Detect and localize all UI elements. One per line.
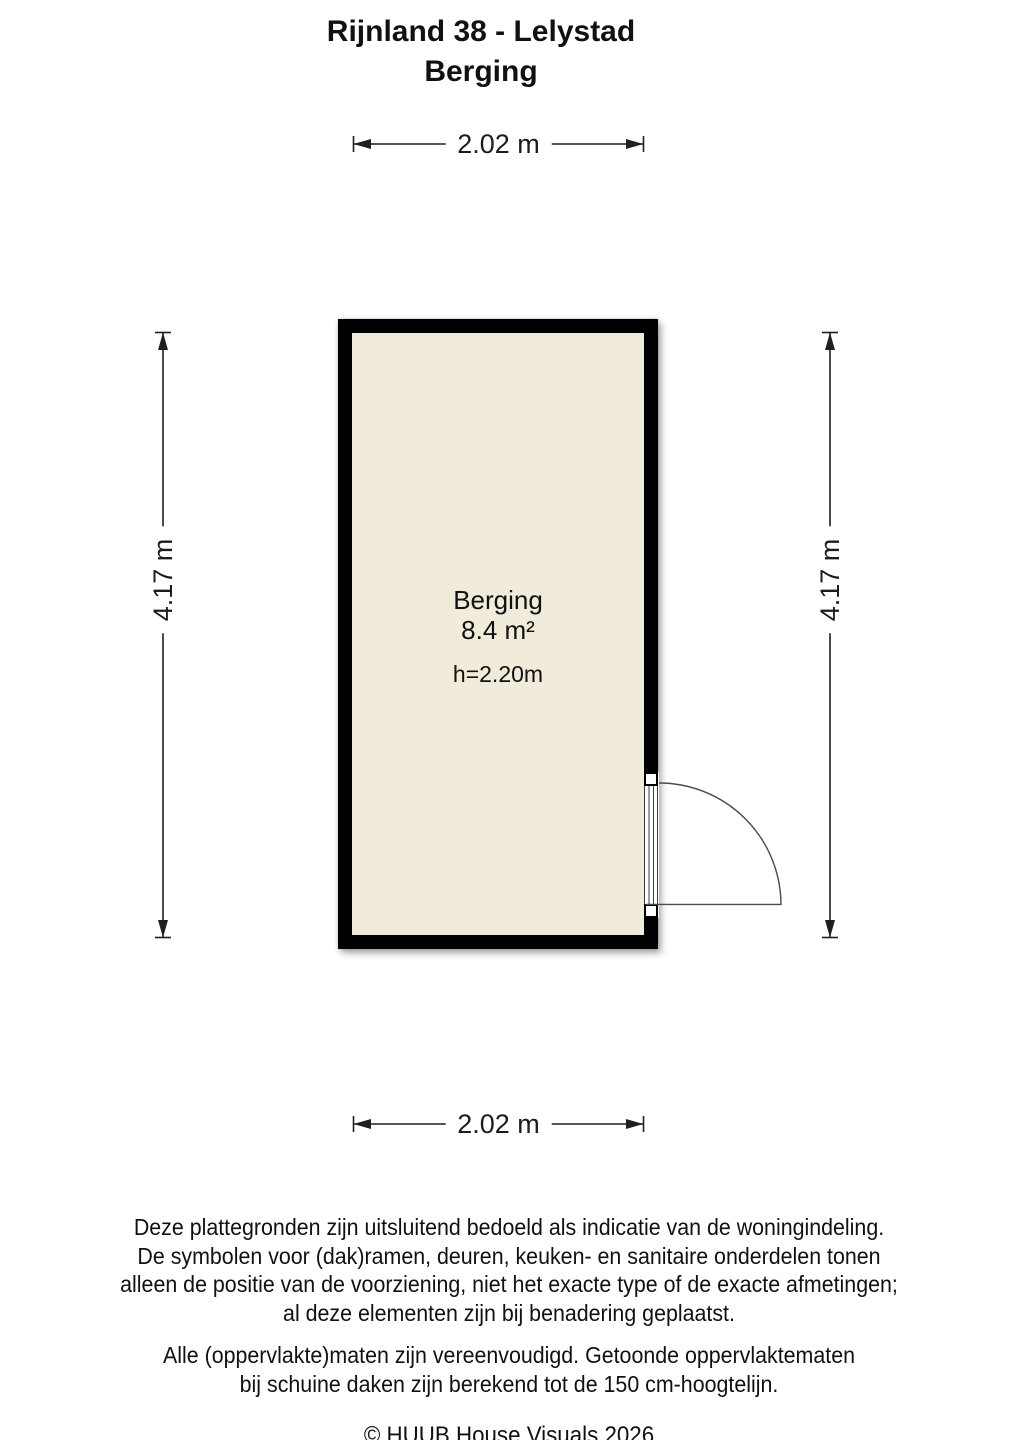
arrowhead-up (825, 333, 835, 351)
disclaimer-paragraph-1: Deze plattegronden zijn uitsluitend bedo… (36, 1213, 983, 1327)
door-swing-arc (659, 783, 781, 905)
dimension-left: 4.17 m (150, 331, 176, 939)
dimension-top: 2.02 m (352, 130, 645, 158)
room-berging: Berging 8.4 m² h=2.20m (338, 319, 658, 949)
arrowhead-right (626, 1119, 644, 1129)
dimension-right-line (817, 331, 843, 939)
arrowhead-down (158, 920, 168, 938)
arrowhead-up (158, 333, 168, 351)
title-address: Rijnland 38 - Lelystad (0, 12, 962, 52)
dimension-bottom-label: 2.02 m (445, 1108, 552, 1140)
dimension-top-label: 2.02 m (445, 128, 552, 160)
title-room: Berging (0, 52, 962, 92)
arrowhead-left (354, 1119, 372, 1129)
arrowhead-right (626, 139, 644, 149)
floorplan-page: Rijnland 38 - Lelystad Berging 2.02 m 4.… (0, 0, 1018, 1440)
room-label: Berging 8.4 m² h=2.20m (352, 585, 644, 687)
dimension-bottom: 2.02 m (352, 1110, 645, 1138)
dimension-left-label: 4.17 m (147, 527, 179, 634)
dimension-right-label: 4.17 m (814, 527, 846, 634)
disclaimer-paragraph-2: Alle (oppervlakte)maten zijn vereenvoudi… (36, 1341, 983, 1398)
room-name: Berging (352, 585, 644, 615)
room-area: 8.4 m² (352, 615, 644, 645)
copyright-line: © HUUB House Visuals 2026 (36, 1422, 983, 1440)
page-title: Rijnland 38 - Lelystad Berging (0, 12, 962, 92)
arrowhead-left (354, 139, 372, 149)
room-ceiling-height: h=2.20m (352, 661, 644, 687)
dimension-right: 4.17 m (817, 331, 843, 939)
arrowhead-down (825, 920, 835, 938)
door-swing-icon (645, 775, 795, 915)
dimension-left-line (150, 331, 176, 939)
